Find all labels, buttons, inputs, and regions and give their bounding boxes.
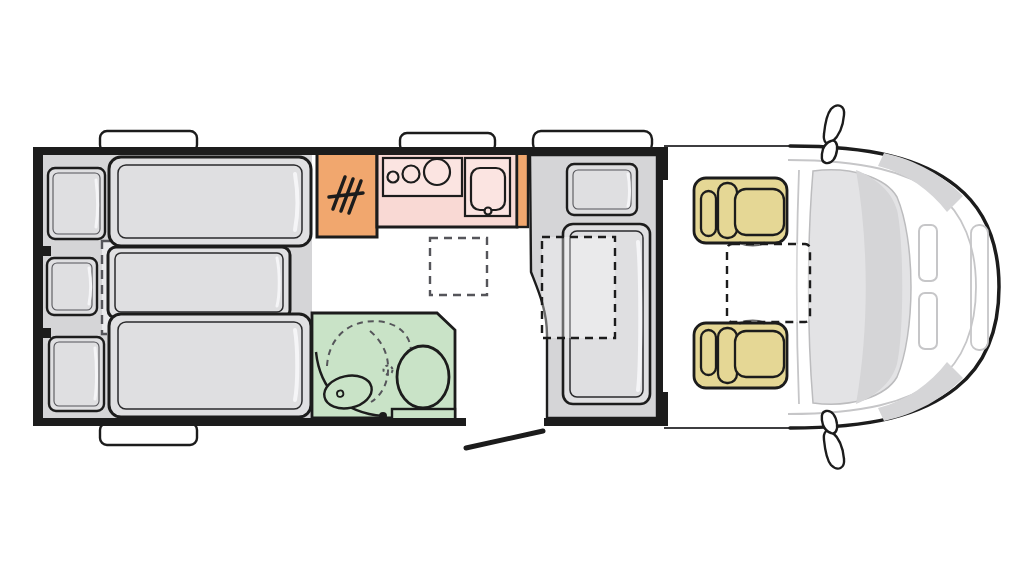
- burner-medium: [403, 166, 420, 183]
- headlight-left: [919, 225, 937, 281]
- folding-table-kitchen: [430, 238, 487, 295]
- bed-mattress: [118, 322, 302, 409]
- wall-cab-bottom: [656, 392, 668, 426]
- wall-bottom-left: [33, 418, 466, 426]
- folding-table-lounge: [542, 237, 615, 338]
- driver-seat: [694, 178, 787, 245]
- headlight-right: [919, 293, 937, 349]
- faucet-dot: [485, 208, 492, 215]
- wall-top: [33, 147, 668, 155]
- middle-bed: [108, 247, 290, 318]
- mattress-highlight: [638, 242, 640, 390]
- pillow-highlight: [95, 348, 97, 399]
- bathroom: [312, 313, 455, 422]
- swivel-table-zone: [727, 244, 810, 322]
- cab-partition-line: [658, 178, 663, 394]
- single-bed-bottom: [109, 314, 311, 417]
- motorhome-floorplan: [0, 0, 1024, 576]
- rear-bedroom: [43, 155, 312, 418]
- mirror-top: [822, 105, 844, 163]
- entrance-door-swing: [466, 431, 543, 448]
- passenger-seat: [694, 321, 787, 388]
- sink-basin: [471, 168, 505, 210]
- front-bumper-line: [971, 225, 988, 350]
- window-rear-bottom: [100, 423, 197, 445]
- kitchen-end-panel: [517, 150, 528, 227]
- pillow: [567, 164, 637, 215]
- bed-divider-stub-bottom: [43, 328, 51, 338]
- burner-small: [388, 172, 399, 183]
- bed-divider-stub-top: [43, 246, 51, 256]
- lounge-pillow: [567, 164, 637, 215]
- hob: [383, 158, 462, 196]
- mirror-bottom: [822, 411, 844, 469]
- wardrobe: [317, 150, 377, 237]
- pillow-middle: [47, 258, 97, 315]
- wall-rear: [33, 147, 43, 426]
- pillow-highlight: [628, 174, 630, 206]
- entrance-lounge: [530, 155, 657, 418]
- mattress-highlight: [295, 330, 297, 400]
- bed-mattress: [115, 253, 283, 312]
- floorplan-stage: [0, 0, 1024, 576]
- pillow-bottom: [49, 337, 104, 411]
- kitchen-sink: [465, 158, 510, 216]
- single-bed-top: [109, 157, 311, 246]
- pillow-highlight: [89, 268, 91, 304]
- bed-mattress: [118, 165, 302, 238]
- wall-cab-top: [656, 147, 668, 180]
- burner-large: [424, 159, 450, 185]
- toilet-bowl: [397, 346, 449, 408]
- kitchen: [377, 150, 528, 295]
- wall-bottom-right: [544, 418, 668, 426]
- pillow-top: [48, 168, 105, 239]
- pillow-highlight: [96, 180, 98, 227]
- cab: [664, 105, 999, 468]
